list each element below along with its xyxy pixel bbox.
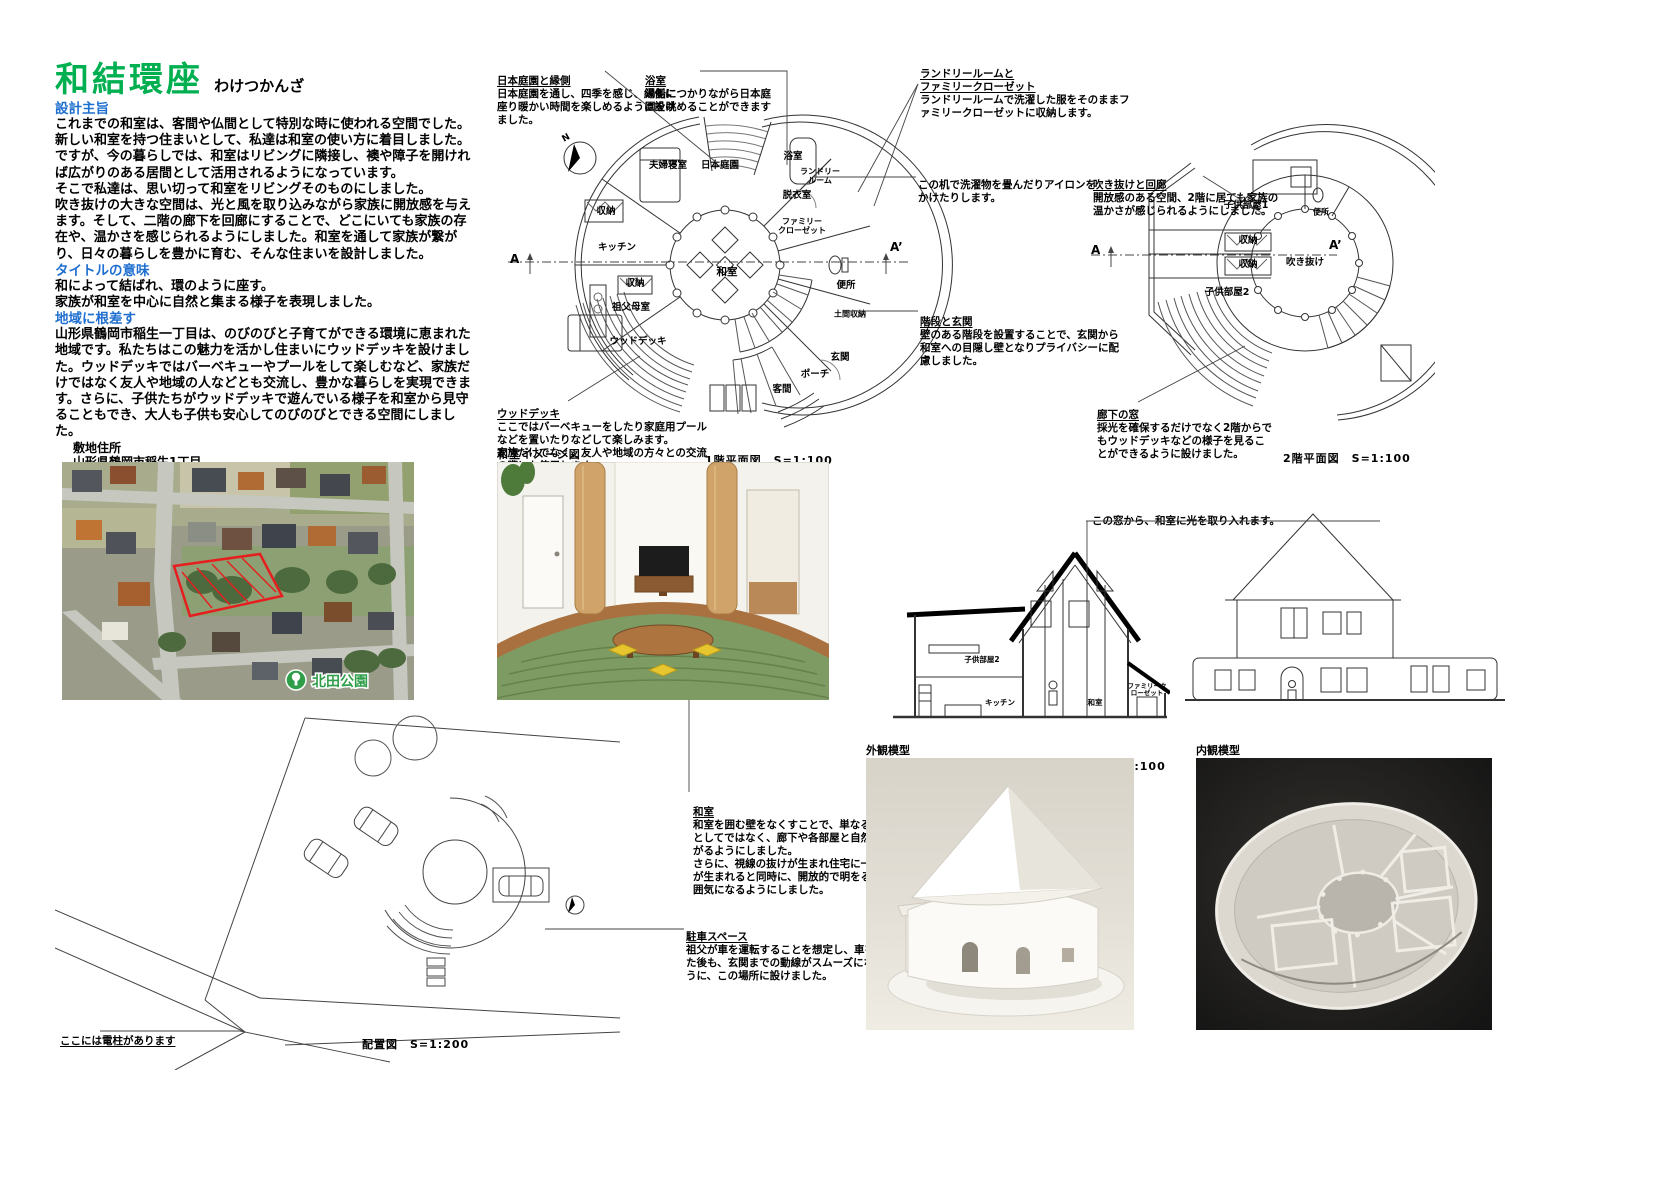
room-label: 夫婦寝室 (649, 161, 687, 172)
presentation-board: 和結環座 わけつかんざ 設計主旨 これまでの和室は、客間や仏間として特別な時に使… (0, 0, 1679, 1185)
heading-design-concept: 設計主旨 (55, 101, 479, 117)
right-bay (1381, 345, 1411, 381)
room-label: ウッドデッキ (609, 337, 666, 348)
roads-and-boundary (55, 718, 620, 1070)
park-label: 北田公園 (312, 674, 368, 690)
room-label: ポーチ (801, 370, 830, 381)
room-label: 便所 (836, 281, 855, 292)
note-desk: この机で洗濯物を畳んだりアイロンをかけたりします。 (918, 166, 1096, 218)
interior-sketch-image (497, 462, 829, 700)
interior-image-label: 和室イメージ図 (497, 446, 581, 462)
note-void: 吹き抜けと回廊 開放感のある空間、2階に居ても家族の温かさが感じられるようにしま… (1093, 166, 1283, 231)
interior-model-drawing (1196, 758, 1492, 1030)
note-parking: 駐車スペース 祖父が車を運転することを想定し、車を降りた後も、玄関までの動線がス… (686, 918, 896, 996)
tower (1011, 553, 1139, 717)
room-label: 日本庭園 (701, 161, 739, 172)
park-pin-icon (286, 670, 306, 690)
room-label: 収納 (1238, 236, 1257, 247)
heading-region: 地域に根差す (55, 311, 479, 327)
interior-model-photo (1196, 758, 1492, 1030)
room-label: 脱衣室 (783, 191, 812, 202)
site-plan-caption: 配置図 S=1:200 (362, 1036, 469, 1052)
room-label: 土間収納 (834, 310, 866, 319)
section-room-label: ファミリークローゼット (1127, 683, 1167, 697)
heading-title-meaning: タイトルの意味 (55, 263, 479, 279)
room-label: 便所 (1313, 208, 1329, 217)
section-room-label: キッチン (985, 699, 1015, 708)
site-plan (55, 700, 635, 1070)
exterior-model-photo (866, 758, 1134, 1030)
left-door (523, 496, 563, 608)
section-drawing-svg (885, 545, 1170, 730)
section-mark-a: A (1091, 243, 1100, 257)
note-utility-pole: ここには電柱があります (60, 1022, 240, 1048)
roof-triangle (1233, 514, 1393, 600)
note-bath: 浴室 湯船につかりながら日本庭園を眺めることができます (645, 62, 777, 127)
tv-and-stand (635, 546, 693, 596)
room-label: 祖父母室 (612, 303, 650, 314)
section-room-label: 子供部屋2 (964, 656, 999, 665)
porch-steps (778, 393, 824, 427)
exterior-model-label: 外観模型 (866, 742, 910, 758)
room-label: 客間 (772, 385, 791, 396)
section-mark-a: A (510, 252, 519, 266)
compass-small (566, 896, 584, 914)
section-mark-a2: A’ (1329, 238, 1342, 252)
second-floor-box (1237, 600, 1393, 658)
title-meaning-text: 和によって結ばれ、環のように座す。 家族が和室を中心に自然と集まる様子を表現しま… (55, 279, 479, 311)
section-room-label: 和室 (1088, 699, 1103, 708)
note-washitsu: 和室 和室を囲む壁をなくすことで、単なる一室としてではなく、廊下や各部屋と自然と… (693, 793, 893, 910)
plan2f-caption: 2階平面図 S=1:100 (1283, 450, 1411, 466)
deck-roof-arcs (1158, 288, 1272, 406)
region-text: 山形県鶴岡市稲生一丁目は、のびのびと子育てができる環境に恵まれた地域です。私たち… (55, 327, 479, 440)
aerial-photo-drawing: 北田公園 (62, 462, 414, 700)
site-plan-drawing (55, 700, 635, 1070)
room-label: 浴室 (783, 152, 802, 163)
page-title: 和結環座 (55, 52, 203, 101)
room-label: 吹き抜け (1286, 258, 1324, 269)
room-label: 収納 (625, 279, 644, 290)
room-label: 和室 (717, 267, 738, 278)
section-mark-a2: A’ (890, 240, 903, 254)
exterior-model-drawing (866, 758, 1134, 1030)
elevation-drawing (1185, 508, 1505, 708)
interior-sketch-drawing (497, 462, 829, 700)
section-drawing: 子供部屋2 キッチン 和室 ファミリークローゼット (885, 545, 1170, 730)
room-label: 子供部屋2 (1205, 288, 1250, 299)
right-opening (747, 490, 799, 614)
interior-model-label: 内観模型 (1196, 742, 1240, 758)
room-label: 玄関 (830, 353, 849, 364)
address-label: 敷地住所 (73, 441, 479, 456)
elevation-drawing-svg (1185, 508, 1505, 708)
section-arrows-2f (1108, 246, 1114, 267)
room-label: 収納 (1238, 260, 1257, 271)
room-label: キッチン (598, 243, 636, 254)
building-footprint (385, 796, 525, 986)
aerial-photo: 北田公園 (62, 462, 414, 700)
first-floor-body (1193, 658, 1497, 700)
room-label: ファミリー クローゼット (778, 217, 826, 235)
cars (301, 804, 549, 902)
room-label: 収納 (596, 207, 615, 218)
room-label: ランドリー ルーム (800, 167, 840, 185)
design-concept-text: これまでの和室は、客間や仏間として特別な時に使われる空間でした。 新しい和室を持… (55, 117, 479, 263)
title-block: 和結環座 わけつかんざ (55, 52, 479, 101)
page-title-ruby: わけつかんざ (214, 77, 304, 95)
note-corridor-window: 廊下の窓 採光を確保するだけでなく2階からでもウッドデッキなどの様子を見ることが… (1097, 396, 1275, 474)
